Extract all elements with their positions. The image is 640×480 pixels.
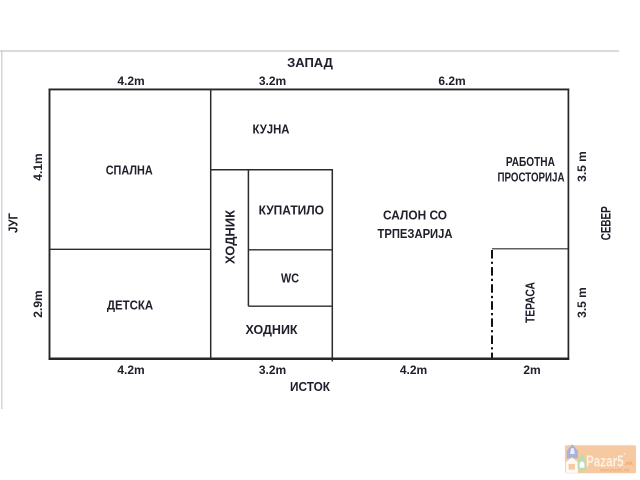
svg-text:2.9m: 2.9m (31, 290, 45, 317)
svg-text:4.1m: 4.1m (31, 153, 45, 180)
svg-text:ДЕТСКА: ДЕТСКА (107, 299, 153, 313)
svg-text:3.2m: 3.2m (259, 74, 286, 88)
svg-text:www.pazar5.mk: www.pazar5.mk (600, 468, 630, 473)
svg-text:3.5 m: 3.5 m (575, 287, 589, 318)
svg-text:6.2m: 6.2m (438, 74, 465, 88)
svg-text:WC: WC (281, 272, 299, 286)
svg-text:4.2m: 4.2m (117, 363, 144, 377)
svg-text:ТРПЕЗАРИЈА: ТРПЕЗАРИЈА (378, 227, 453, 241)
svg-text:СПАЛНА: СПАЛНА (106, 164, 153, 178)
svg-text:.mk: .mk (624, 461, 633, 467)
svg-text:ТЕРАСА: ТЕРАСА (524, 282, 538, 323)
svg-text:КУЈНА: КУЈНА (253, 123, 290, 137)
svg-text:ХОДНИК: ХОДНИК (223, 210, 237, 264)
svg-text:ЗАПАД: ЗАПАД (287, 55, 334, 70)
svg-text:3.2m: 3.2m (259, 363, 286, 377)
svg-text:ПРОСТОРИЈА: ПРОСТОРИЈА (498, 171, 565, 185)
svg-text:4.2m: 4.2m (117, 74, 144, 88)
svg-text:2m: 2m (523, 363, 540, 377)
svg-text:4.2m: 4.2m (400, 363, 427, 377)
svg-text:САЛОН СО: САЛОН СО (383, 209, 447, 223)
svg-text:РАБОТНА: РАБОТНА (506, 155, 555, 169)
svg-text:ХОДНИК: ХОДНИК (245, 323, 297, 337)
svg-text:ЈУГ: ЈУГ (6, 212, 21, 233)
svg-text:КУПАТИЛО: КУПАТИЛО (259, 204, 325, 218)
svg-text:3.5 m: 3.5 m (575, 151, 589, 182)
svg-text:ИСТОК: ИСТОК (290, 379, 330, 394)
svg-text:СЕВЕР: СЕВЕР (598, 206, 613, 240)
